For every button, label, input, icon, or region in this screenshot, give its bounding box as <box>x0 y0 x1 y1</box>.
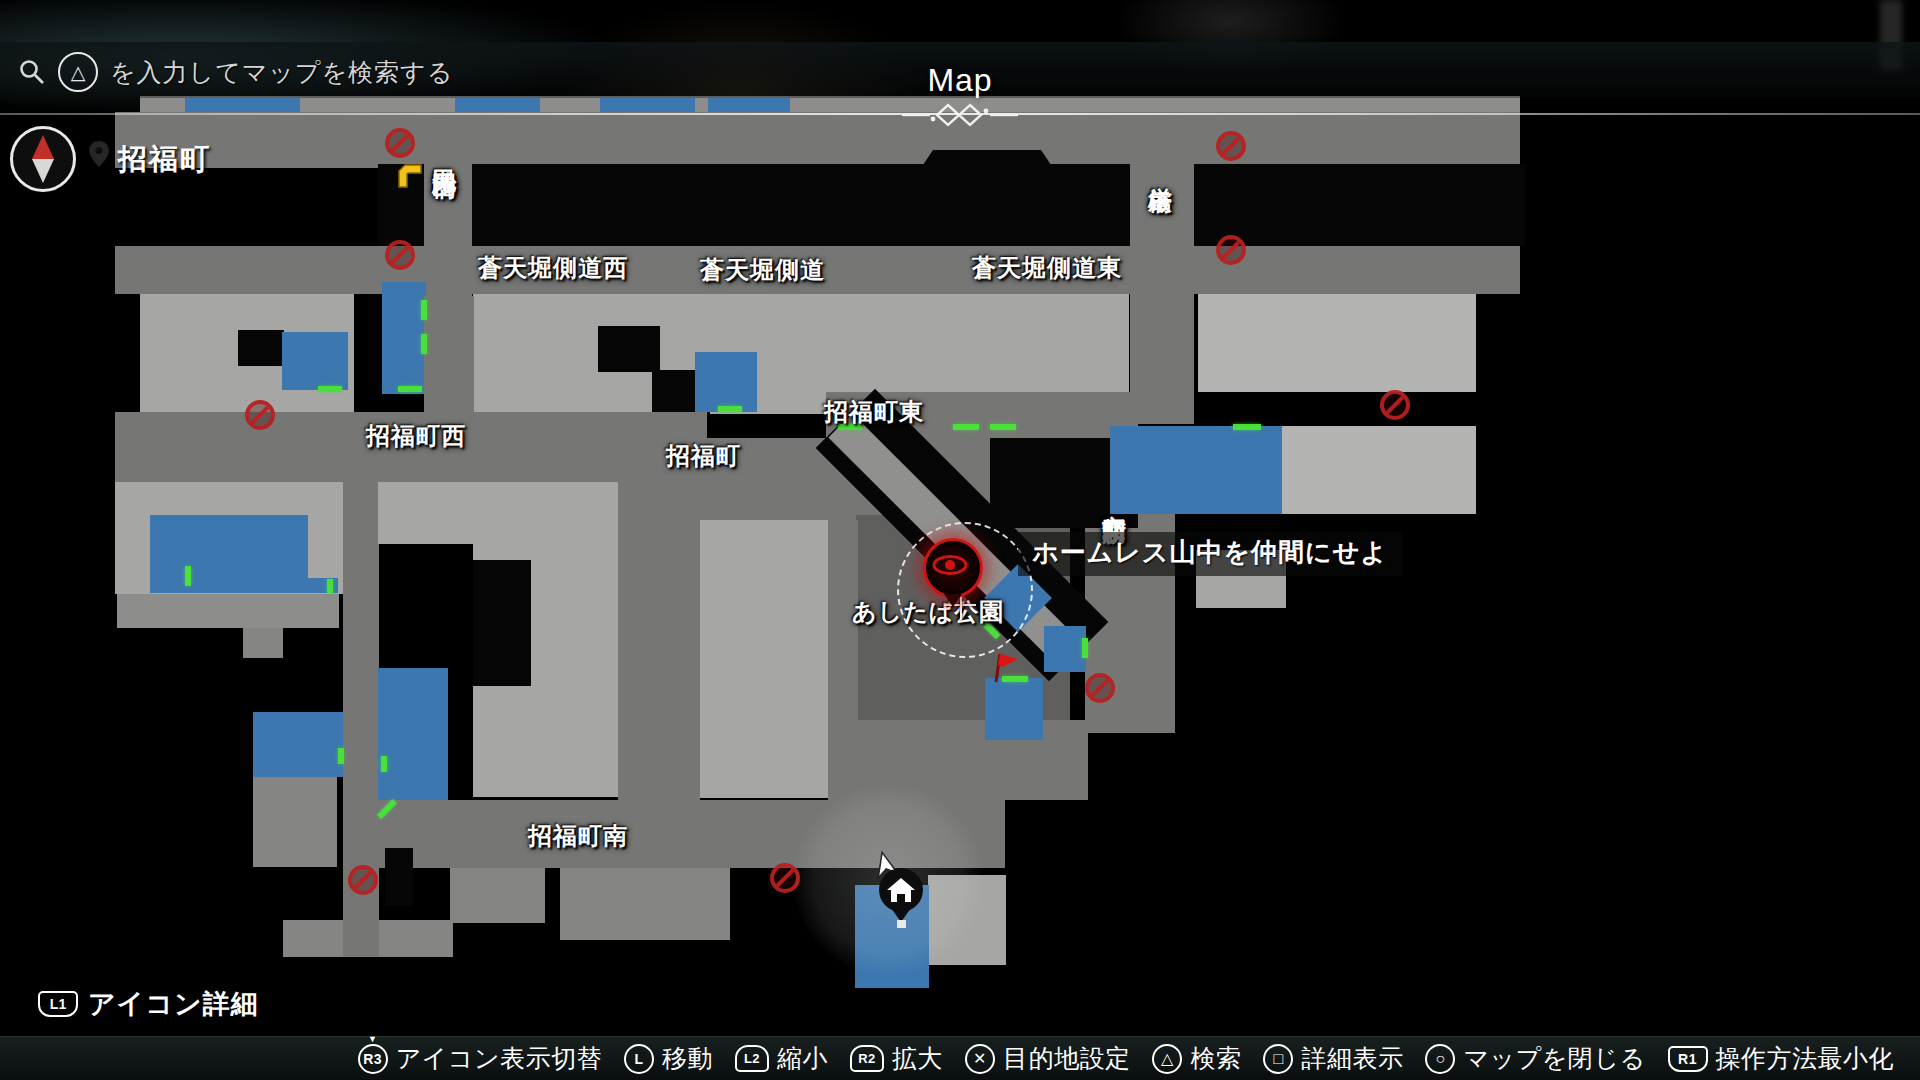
player-home-marker <box>863 850 927 932</box>
map-area-road <box>424 296 474 416</box>
map-area-slate <box>117 594 339 628</box>
map-area-shop <box>695 352 757 412</box>
street-label: 蒼天堀側道 <box>700 254 825 286</box>
map-area-black <box>385 848 413 906</box>
map-area-bldg <box>378 482 474 544</box>
icon-detail-hint: L1 アイコン詳細 <box>38 986 259 1022</box>
map-area-shop <box>600 98 695 113</box>
control-hint-label: アイコン表示切替 <box>396 1042 602 1075</box>
control-hint-circle: ○マップを閉じる <box>1425 1042 1645 1075</box>
map-area-shop <box>378 668 448 810</box>
page-title: Map <box>927 62 992 99</box>
control-hint-label: 検索 <box>1190 1042 1241 1075</box>
compass-needle-icon <box>13 129 73 189</box>
shop-entrance-marker <box>338 748 344 764</box>
flag-marker <box>989 650 1021 688</box>
no-entry-icon <box>1085 673 1115 703</box>
map-layer[interactable]: 毘沙門橋蒼天堀側道西蒼天堀側道蒼天堀側道東厳橋招福町西招福町招福町東文斬門筋あし… <box>0 0 1920 1080</box>
shop-entrance-marker <box>990 424 1016 430</box>
cross-button-icon: ✕ <box>965 1044 995 1074</box>
shop-entrance-marker <box>718 406 742 412</box>
street-label: 文斬門筋 <box>1098 496 1130 504</box>
map-area-bldg2 <box>1282 426 1476 514</box>
compass <box>10 126 76 192</box>
shop-entrance-marker <box>327 579 333 593</box>
icon-detail-label: アイコン詳細 <box>88 986 259 1022</box>
r3-stick-icon: R3▼ <box>358 1044 388 1074</box>
location-pin-icon <box>88 140 110 168</box>
map-area-black <box>473 560 531 686</box>
control-hint-r1: R1操作方法最小化 <box>1668 1042 1895 1075</box>
control-hint-label: 詳細表示 <box>1301 1042 1403 1075</box>
search-bar[interactable]: △ を入力してマップを検索する <box>18 52 453 92</box>
map-area-shop <box>455 98 540 113</box>
shop-entrance-marker <box>398 386 422 392</box>
taxi-marker <box>396 162 424 194</box>
no-entry-icon <box>348 865 378 895</box>
shop-entrance-marker <box>381 756 387 772</box>
press-arrow-icon: ▼ <box>368 1034 377 1044</box>
street-label: 招福町東 <box>824 396 924 428</box>
control-hint-r3: R3▼アイコン表示切替 <box>358 1042 602 1075</box>
no-entry-icon <box>1380 390 1410 420</box>
no-entry-icon <box>1216 235 1246 265</box>
no-entry-icon <box>385 240 415 270</box>
no-entry-icon <box>1216 131 1246 161</box>
square-button-icon: □ <box>1263 1044 1293 1074</box>
r1-button-icon: R1 <box>1668 1046 1708 1072</box>
map-area-bldg <box>700 520 828 798</box>
map-area-shop <box>150 515 308 593</box>
l2-trigger-icon: L2 <box>735 1045 769 1072</box>
current-area-name: 招福町 <box>118 140 211 180</box>
shop-entrance-marker <box>318 386 342 392</box>
control-hint-label: 移動 <box>662 1042 713 1075</box>
l-stick-icon: L <box>624 1044 654 1074</box>
map-area-bldgd <box>243 628 283 658</box>
shop-entrance-marker <box>953 424 979 430</box>
search-icon <box>18 58 46 86</box>
control-hint-label: マップを閉じる <box>1463 1042 1645 1075</box>
map-area-shop <box>306 578 338 593</box>
r2-trigger-icon: R2 <box>850 1045 884 1072</box>
shop-entrance-marker <box>1082 638 1088 658</box>
control-hint-label: 縮小 <box>777 1042 828 1075</box>
control-hint-triangle: △検索 <box>1152 1042 1241 1075</box>
map-area-road <box>828 520 858 800</box>
divider-ornament <box>900 102 1020 128</box>
shop-entrance-marker <box>1233 424 1261 430</box>
control-hint-label: 拡大 <box>892 1042 943 1075</box>
map-area-bldgd <box>450 868 545 923</box>
shop-entrance-marker <box>185 566 191 586</box>
shop-entrance-marker <box>421 334 427 354</box>
street-label: 厳橋 <box>1144 168 1176 172</box>
search-placeholder: を入力してマップを検索する <box>110 56 453 89</box>
map-area-black <box>598 326 660 372</box>
circle-button-icon: ○ <box>1425 1044 1455 1074</box>
map-area-bldgd <box>560 868 730 940</box>
street-label: 蒼天堀側道東 <box>972 252 1122 284</box>
control-hint-label: 目的地設定 <box>1003 1042 1131 1075</box>
control-hint-square: □詳細表示 <box>1263 1042 1403 1075</box>
control-hint-l2: L2縮小 <box>735 1042 828 1075</box>
shop-entrance-marker <box>421 300 427 320</box>
control-hint-label: 操作方法最小化 <box>1716 1042 1895 1075</box>
no-entry-icon <box>385 128 415 158</box>
control-hint-bar: R3▼アイコン表示切替L移動L2縮小R2拡大✕目的地設定△検索□詳細表示○マップ… <box>0 1036 1920 1080</box>
map-area-shop <box>1110 426 1282 514</box>
control-hint-l: L移動 <box>624 1042 713 1075</box>
map-area-black <box>238 330 284 366</box>
map-area-shop <box>708 98 790 113</box>
eye-icon <box>926 541 974 589</box>
map-area-shop <box>253 712 343 777</box>
street-label: 招福町西 <box>366 420 466 452</box>
map-area-road <box>618 482 700 800</box>
street-label: 蒼天堀側道西 <box>478 252 628 284</box>
map-area-shop <box>1044 626 1086 672</box>
map-area-shop <box>382 282 426 394</box>
no-entry-icon <box>245 400 275 430</box>
street-label: 毘沙門橋 <box>428 150 460 158</box>
destination-marker[interactable] <box>923 538 983 598</box>
map-area-bldgd <box>253 777 337 867</box>
street-label: 招福町 <box>666 440 741 472</box>
map-area-road <box>1130 296 1194 424</box>
triangle-button-icon: △ <box>1152 1044 1182 1074</box>
map-area-road <box>115 112 1520 168</box>
screen: { "header": { "title": "Map", "search": … <box>0 0 1920 1080</box>
control-hint-r2: R2拡大 <box>850 1042 943 1075</box>
map-area-bldg2 <box>1198 294 1476 392</box>
street-label: 招福町南 <box>528 820 628 852</box>
control-hint-cross: ✕目的地設定 <box>965 1042 1131 1075</box>
map-area-black <box>912 150 1062 254</box>
map-area-shop <box>282 332 348 390</box>
triangle-button-icon: △ <box>58 52 98 92</box>
quest-banner: ホームレス山中を仲間にせよ <box>1018 532 1402 576</box>
destination-marker-tip <box>944 594 962 607</box>
l1-button-icon: L1 <box>38 991 78 1017</box>
map-area-shop <box>185 98 300 113</box>
